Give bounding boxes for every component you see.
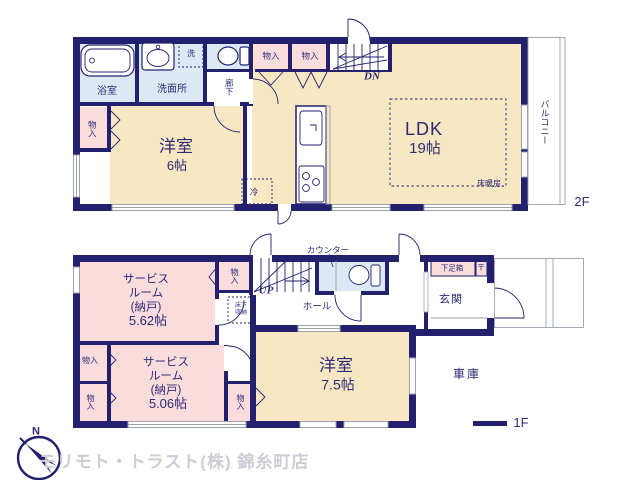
closet-left-lower-area [76,384,107,421]
kitchen-icon [296,106,330,204]
door-arc-toilet [335,295,361,321]
closet-top2-area [293,41,326,71]
bathtub-icon [81,45,134,76]
toilet-1f-icon [349,265,380,286]
porch-outline [495,259,584,328]
closet-mid-area [219,260,249,293]
floorplan-canvas: 浴室 洗面所 洗 廊下 物入 物入 DN 物入 洋室 6帖 LDK 19帖 床暖… [0,0,640,480]
door-arc-top1 [250,234,271,255]
closet-left-2f-area [76,107,109,151]
closet-top1-area [255,41,288,71]
service-room2-area [110,345,224,421]
shoe-box-area [431,261,475,276]
service-room1-area [76,258,215,341]
closet-left-upper-area [76,345,107,381]
post-box-area [476,261,487,276]
floor1-scale-tick [473,421,507,426]
washbasin-icon [142,43,174,70]
company-name: モリモト・トラスト(株) 錦糸町店 [39,448,310,473]
western-room-2f-area [110,104,245,204]
toilet-2f-icon [218,47,249,65]
floorplan-graphics [0,0,640,480]
door-arc-service2 [228,346,253,371]
stairs-up-icon [254,258,312,292]
door-arc-entrance [494,288,524,318]
door-arc-back [278,211,291,224]
balcony-outline [528,38,565,205]
closet-right-area [228,384,250,421]
western-room-1f-area [256,332,409,421]
door-arc-top2 [399,234,420,255]
door-arc-service1 [219,300,244,325]
